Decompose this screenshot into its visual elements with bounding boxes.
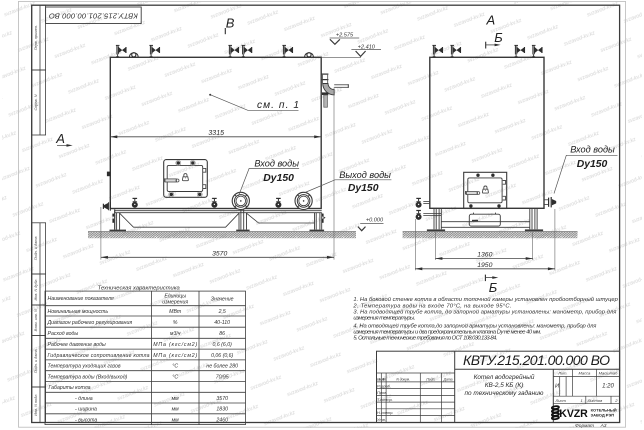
svg-text:Вход воды: Вход воды bbox=[570, 144, 615, 154]
svg-text:Лист: Лист bbox=[555, 398, 567, 403]
svg-text:1830: 1830 bbox=[216, 407, 228, 413]
svg-text:МПа (кгс/см2): МПа (кгс/см2) bbox=[153, 353, 197, 359]
svg-text:3570: 3570 bbox=[212, 250, 227, 257]
svg-text:МВт: МВт bbox=[169, 309, 182, 315]
svg-text:МПа (кгс/см2): МПа (кгс/см2) bbox=[153, 342, 197, 348]
svg-text:1950: 1950 bbox=[477, 262, 492, 269]
svg-text:по техническому заданию: по техническому заданию bbox=[465, 389, 544, 397]
svg-text:Рабочее давление воды: Рабочее давление воды bbox=[48, 342, 106, 348]
svg-text:Инв. N дубл.: Инв. N дубл. bbox=[34, 279, 38, 301]
svg-text:м3/ч: м3/ч bbox=[170, 331, 181, 337]
svg-text:Справ. N: Справ. N bbox=[34, 94, 38, 110]
svg-text:Подп. и дата: Подп. и дата bbox=[34, 237, 38, 261]
svg-text:+0.000: +0.000 bbox=[366, 217, 384, 223]
svg-text:Температура воды (Вход/выход): Температура воды (Вход/выход) bbox=[48, 374, 128, 380]
svg-text:5. Остальные технические треб: 5. Остальные технические требования по О… bbox=[353, 336, 497, 342]
svg-text:КВТУ.215.201.00.000 ВО: КВТУ.215.201.00.000 ВО bbox=[463, 352, 610, 368]
svg-text:0,6 (6,0): 0,6 (6,0) bbox=[213, 342, 233, 348]
svg-text:мм: мм bbox=[172, 407, 180, 413]
svg-text:Dy150: Dy150 bbox=[263, 173, 294, 184]
svg-text:2460: 2460 bbox=[215, 418, 228, 424]
svg-text:3315: 3315 bbox=[208, 130, 224, 137]
svg-text:А: А bbox=[55, 131, 65, 146]
svg-text:измерения: измерения bbox=[162, 299, 188, 305]
svg-text:- ширина: - ширина bbox=[75, 407, 97, 413]
svg-text:Масса: Масса bbox=[578, 371, 591, 376]
svg-text:Вход воды: Вход воды bbox=[254, 158, 299, 168]
svg-text:Диапазон рабочего регулировани: Диапазон рабочего регулирования bbox=[47, 320, 133, 326]
svg-text:Dy150: Dy150 bbox=[348, 183, 379, 194]
svg-text:измерения температуры и два пр: измерения температуры и два предохраните… bbox=[353, 329, 541, 335]
svg-text:3570: 3570 bbox=[216, 396, 228, 402]
svg-text:86: 86 bbox=[219, 331, 225, 337]
svg-text:Взам. инв. N: Взам. инв. N bbox=[34, 309, 38, 331]
svg-text:Наименование показателя: Наименование показателя bbox=[48, 296, 114, 302]
svg-text:1360: 1360 bbox=[477, 252, 492, 259]
svg-text:Выход воды: Выход воды bbox=[339, 170, 391, 180]
svg-text:Котел водогрейный: Котел водогрейный bbox=[474, 373, 535, 381]
svg-text:Расход воды: Расход воды bbox=[48, 331, 79, 337]
svg-text:Дата: Дата bbox=[443, 377, 453, 381]
svg-text:Гидравлическое сопротивление к: Гидравлическое сопротивление котла bbox=[48, 353, 150, 359]
svg-text:Номинальная мощность: Номинальная мощность bbox=[48, 309, 109, 315]
svg-text:1:20: 1:20 bbox=[602, 384, 614, 390]
svg-text:2,5: 2,5 bbox=[218, 309, 226, 315]
svg-text:70/95: 70/95 bbox=[216, 374, 229, 380]
svg-text:КВ-2,5 КБ (К): КВ-2,5 КБ (К) bbox=[485, 382, 524, 389]
svg-text:Инв. N подл.: Инв. N подл. bbox=[34, 394, 38, 416]
svg-text:- длина: - длина bbox=[75, 396, 93, 402]
svg-text:40-110: 40-110 bbox=[214, 320, 230, 326]
svg-text:KVZR: KVZR bbox=[559, 408, 588, 420]
svg-text:Масштаб: Масштаб bbox=[599, 371, 618, 376]
svg-text:КВТУ.215.201.00.000 ВО: КВТУ.215.201.00.000 ВО bbox=[49, 11, 138, 20]
svg-text:Лит.: Лит. bbox=[557, 371, 567, 376]
svg-text:А: А bbox=[486, 13, 496, 28]
svg-text:0,06 (0,6): 0,06 (0,6) bbox=[211, 353, 233, 359]
svg-text:Лист: Лист bbox=[381, 377, 386, 381]
svg-text:мм: мм bbox=[172, 396, 180, 402]
svg-text:%: % bbox=[173, 320, 178, 326]
svg-text:Подп. и дата: Подп. и дата bbox=[34, 349, 38, 373]
svg-text:Температура уходящих газов: Температура уходящих газов bbox=[48, 364, 121, 370]
svg-text:°С: °С bbox=[172, 374, 178, 380]
svg-text:мм: мм bbox=[172, 418, 180, 424]
svg-text:Подп.: Подп. bbox=[426, 377, 435, 381]
svg-text:1: 1 bbox=[581, 398, 583, 403]
svg-text:- высота: - высота bbox=[75, 418, 97, 424]
svg-text:Утв.: Утв. bbox=[377, 417, 386, 422]
svg-text:Перв. примен.: Перв. примен. bbox=[34, 25, 38, 50]
svg-text:Разраб.: Разраб. bbox=[377, 384, 391, 389]
svg-text:В: В bbox=[226, 16, 235, 31]
svg-text:Пров.: Пров. bbox=[377, 390, 387, 395]
svg-text:Формат: Формат bbox=[575, 423, 594, 429]
svg-text:КОТЕЛЬНЫЙ: КОТЕЛЬНЫЙ bbox=[591, 407, 617, 412]
svg-text:Н.контр.: Н.контр. bbox=[377, 410, 393, 415]
svg-text:Листов: Листов bbox=[587, 398, 603, 403]
svg-text:Значение: Значение bbox=[211, 297, 234, 303]
svg-text:Т.контр.: Т.контр. bbox=[377, 397, 393, 402]
svg-text:°С: °С bbox=[172, 364, 178, 370]
svg-text:см. п. 1: см. п. 1 bbox=[257, 100, 299, 111]
svg-text:1. На боковой стенке котла в: 1. На боковой стенке котла в области топ… bbox=[353, 296, 618, 303]
svg-text:Б: Б bbox=[489, 280, 498, 295]
svg-text:А3: А3 bbox=[600, 423, 607, 429]
svg-text:не более 280: не более 280 bbox=[206, 364, 238, 370]
svg-text:ЗАВОД РЭП: ЗАВОД РЭП bbox=[591, 413, 615, 418]
svg-text:Габариты котла: Габариты котла bbox=[49, 385, 91, 391]
svg-text:Б: Б bbox=[494, 30, 503, 45]
svg-text:Dy150: Dy150 bbox=[577, 159, 608, 170]
svg-text:2. Температура воды на входе: 2. Температура воды на входе 70°С, на вы… bbox=[352, 303, 511, 309]
svg-text:N докум.: N докум. bbox=[396, 377, 410, 381]
svg-text:измерения температуры.: измерения температуры. bbox=[353, 315, 415, 321]
